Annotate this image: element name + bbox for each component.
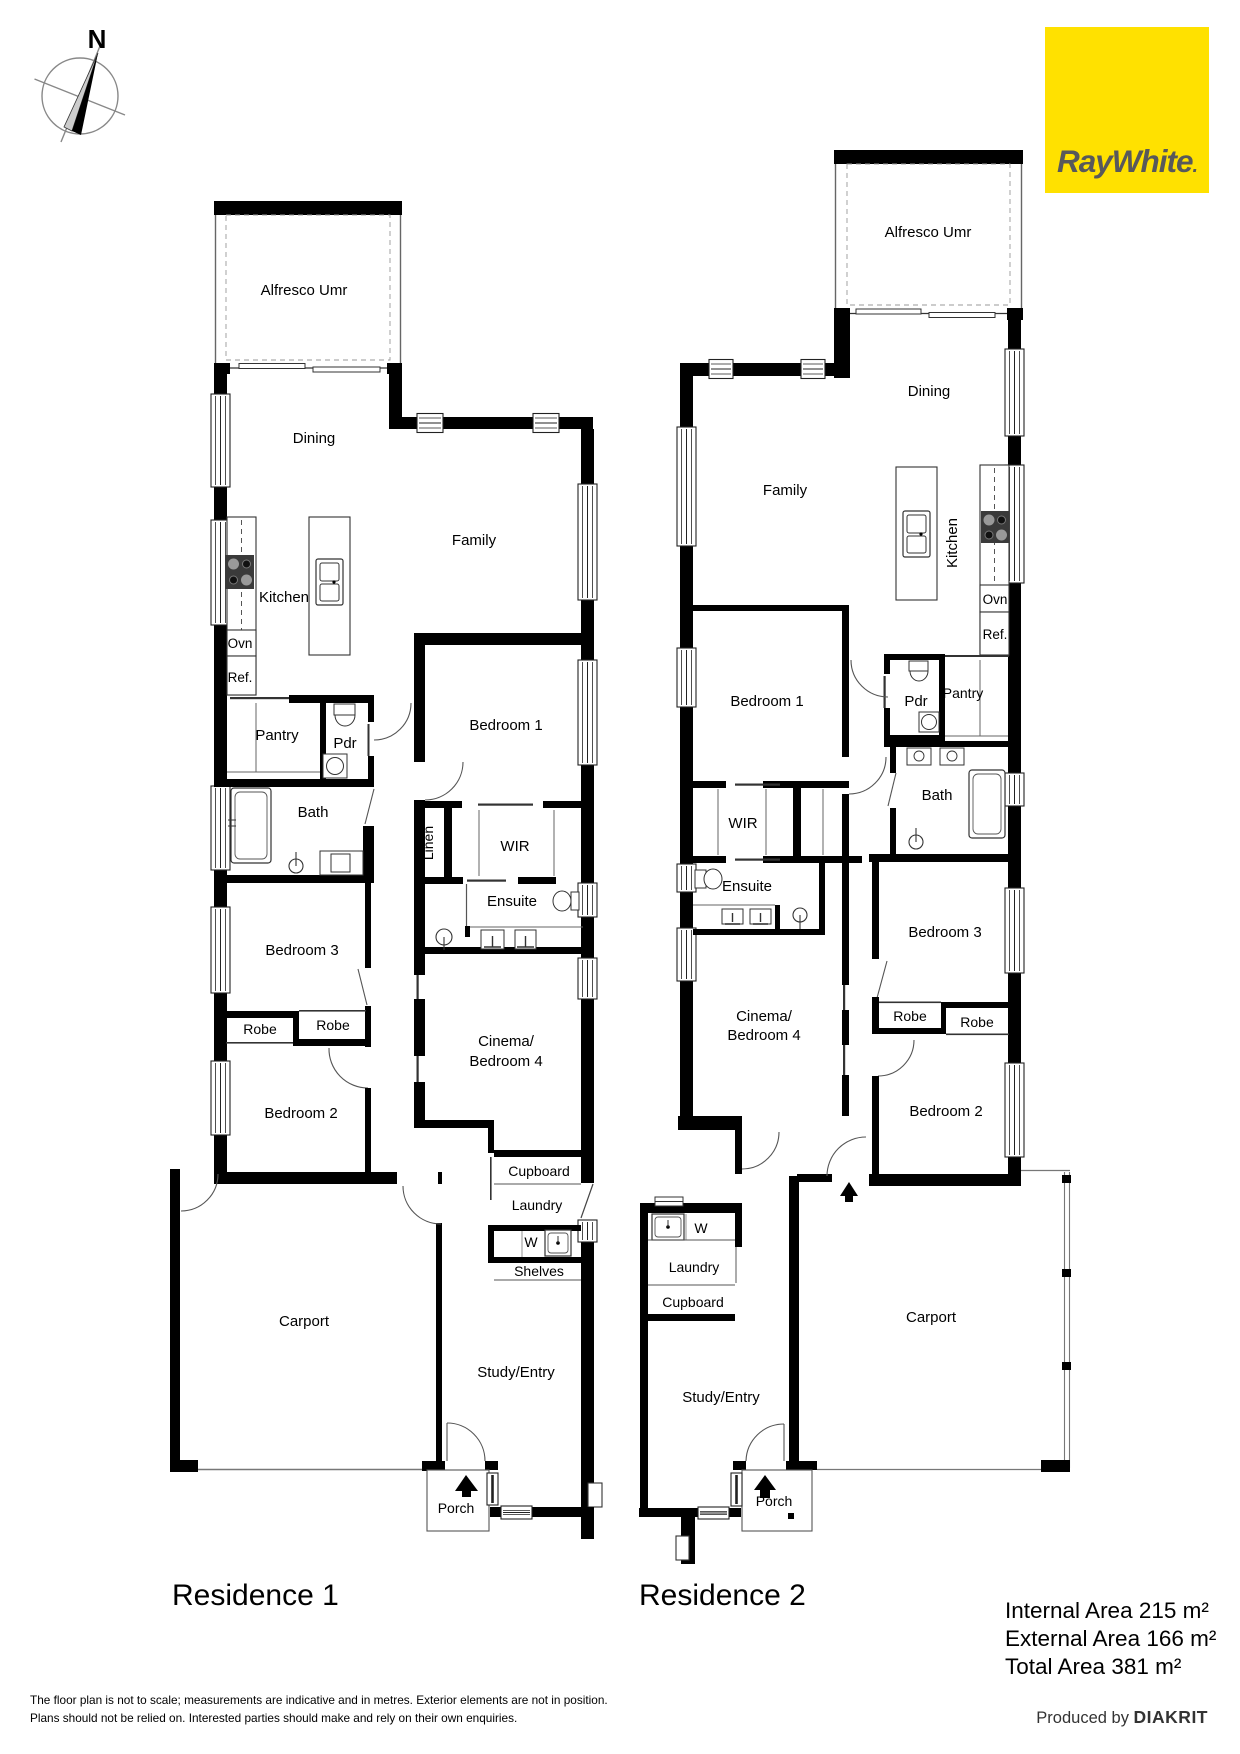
- svg-text:Alfresco Umr: Alfresco Umr: [885, 224, 972, 241]
- svg-text:Ensuite: Ensuite: [722, 878, 772, 895]
- svg-text:Porch: Porch: [756, 1493, 793, 1509]
- svg-text:Robe: Robe: [960, 1014, 994, 1030]
- svg-text:Bath: Bath: [298, 804, 329, 821]
- svg-text:Total Area 381 m²: Total Area 381 m²: [1005, 1654, 1182, 1679]
- svg-text:Family: Family: [763, 482, 808, 499]
- svg-text:Robe: Robe: [316, 1017, 350, 1033]
- svg-text:Pantry: Pantry: [943, 685, 983, 701]
- svg-text:Ovn: Ovn: [983, 592, 1008, 607]
- svg-text:Ensuite: Ensuite: [487, 893, 537, 910]
- svg-text:The floor plan is not to scale: The floor plan is not to scale; measurem…: [30, 1693, 608, 1707]
- svg-text:Bath: Bath: [922, 787, 953, 804]
- svg-text:Cinema/: Cinema/: [478, 1033, 535, 1050]
- svg-text:Pantry: Pantry: [255, 727, 299, 744]
- svg-text:Bedroom 1: Bedroom 1: [469, 717, 542, 734]
- svg-text:Bedroom 3: Bedroom 3: [908, 924, 981, 941]
- svg-text:Bedroom 4: Bedroom 4: [469, 1053, 542, 1070]
- svg-text:Bedroom 2: Bedroom 2: [264, 1105, 337, 1122]
- svg-text:Plans should not be relied on.: Plans should not be relied on. Intereste…: [30, 1711, 517, 1725]
- svg-text:Bedroom 3: Bedroom 3: [265, 942, 338, 959]
- svg-text:Robe: Robe: [893, 1008, 927, 1024]
- svg-text:Cupboard: Cupboard: [662, 1294, 724, 1310]
- svg-text:Ovn: Ovn: [228, 636, 253, 651]
- svg-text:W: W: [524, 1234, 538, 1250]
- svg-text:Porch: Porch: [438, 1500, 475, 1516]
- svg-text:Study/Entry: Study/Entry: [682, 1389, 760, 1406]
- svg-text:Bedroom 2: Bedroom 2: [909, 1103, 982, 1120]
- svg-text:Bedroom 4: Bedroom 4: [727, 1027, 800, 1044]
- svg-text:Kitchen: Kitchen: [259, 589, 309, 606]
- svg-text:Cinema/: Cinema/: [736, 1008, 793, 1025]
- svg-text:Residence 2: Residence 2: [639, 1579, 806, 1612]
- svg-text:Kitchen: Kitchen: [944, 518, 961, 568]
- svg-text:Laundry: Laundry: [669, 1259, 720, 1275]
- svg-text:Linen: Linen: [420, 826, 436, 860]
- svg-text:Internal Area 215 m²: Internal Area 215 m²: [1005, 1598, 1209, 1623]
- svg-text:External Area 166 m²: External Area 166 m²: [1005, 1626, 1217, 1651]
- svg-text:Study/Entry: Study/Entry: [477, 1364, 555, 1381]
- svg-text:Ref.: Ref.: [983, 627, 1008, 642]
- svg-text:Robe: Robe: [243, 1021, 277, 1037]
- svg-text:WIR: WIR: [500, 838, 529, 855]
- svg-text:RayWhite.: RayWhite.: [1057, 143, 1197, 179]
- svg-text:Shelves: Shelves: [514, 1263, 564, 1279]
- svg-text:Dining: Dining: [293, 430, 336, 447]
- svg-text:Cupboard: Cupboard: [508, 1163, 570, 1179]
- svg-text:Pdr: Pdr: [904, 693, 927, 710]
- svg-text:Dining: Dining: [908, 383, 951, 400]
- svg-text:Residence 1: Residence 1: [172, 1579, 339, 1612]
- svg-text:Family: Family: [452, 532, 497, 549]
- svg-text:Carport: Carport: [906, 1309, 957, 1326]
- svg-text:Laundry: Laundry: [512, 1197, 563, 1213]
- svg-text:Bedroom 1: Bedroom 1: [730, 693, 803, 710]
- svg-text:W: W: [694, 1220, 708, 1236]
- svg-text:Ref.: Ref.: [228, 670, 253, 685]
- svg-text:WIR: WIR: [728, 815, 757, 832]
- svg-text:Pdr: Pdr: [333, 735, 356, 752]
- svg-text:Carport: Carport: [279, 1313, 330, 1330]
- svg-text:Produced by DIAKRIT: Produced by DIAKRIT: [1036, 1707, 1208, 1727]
- svg-text:N: N: [88, 24, 107, 54]
- svg-text:Alfresco Umr: Alfresco Umr: [261, 282, 348, 299]
